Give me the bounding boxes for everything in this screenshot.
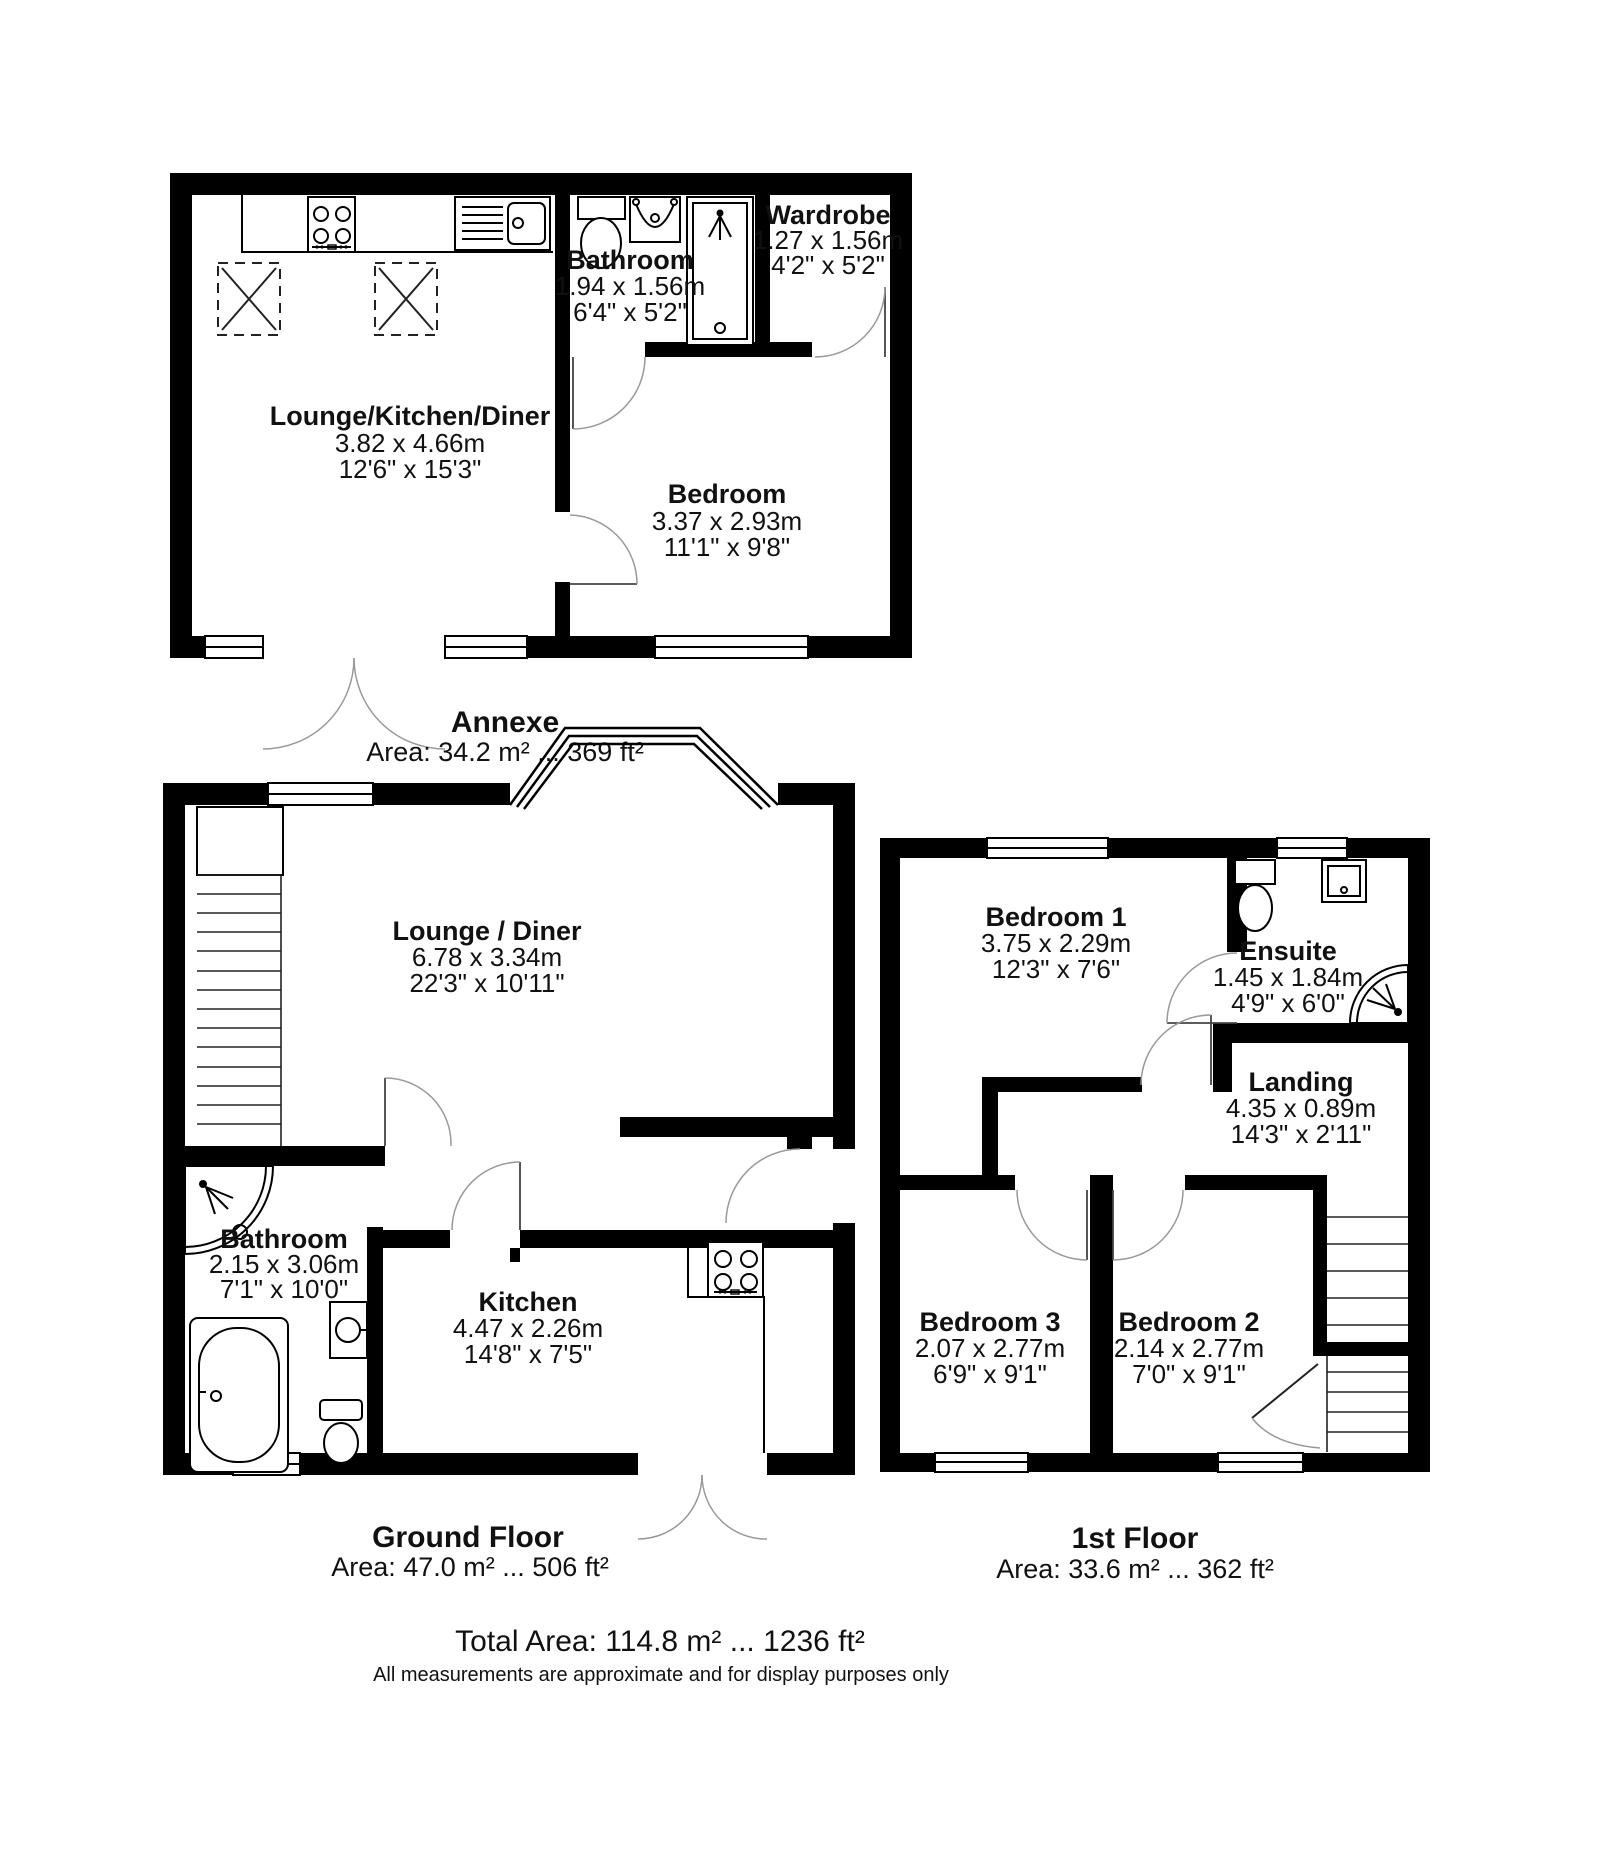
floor-area: Area: 47.0 m² ... 506 ft²: [331, 1552, 609, 1582]
first-floor-doors: [1017, 953, 1237, 1260]
room-dim-imperial: 14'3" x 2'11": [1231, 1119, 1372, 1149]
rooflight-icon: [218, 263, 280, 335]
ground-floor-plan: Lounge / Diner 6.78 x 3.34m 22'3" x 10'1…: [163, 728, 855, 1582]
hob-icon: [308, 197, 355, 252]
annexe-room-labels: Lounge/Kitchen/Diner 3.82 x 4.66m 12'6" …: [270, 200, 903, 562]
window-icon: [205, 636, 263, 658]
room-dim-imperial: 4'2" x 5'2": [771, 250, 885, 280]
bedroom3-door-icon: [1017, 1190, 1087, 1260]
window-icon: [655, 636, 808, 658]
sink-icon: [1322, 860, 1366, 902]
room-dim-imperial: 6'4" x 5'2": [573, 297, 687, 327]
rooflight-icon: [375, 263, 437, 335]
floorplan-page: Lounge/Kitchen/Diner 3.82 x 4.66m 12'6" …: [0, 0, 1600, 1874]
basin-icon: [630, 197, 680, 242]
disclaimer-text: All measurements are approximate and for…: [373, 1664, 949, 1686]
first-floor-staircase: [1252, 1217, 1408, 1452]
room-dim-imperial: 7'0" x 9'1": [1132, 1359, 1246, 1389]
window-icon: [445, 636, 527, 658]
first-floor-title: 1st Floor Area: 33.6 m² ... 362 ft²: [996, 1522, 1274, 1584]
stove-icon: [708, 1242, 763, 1297]
bedroom1-door-icon: [1141, 1015, 1211, 1085]
floor-title: Annexe: [451, 706, 559, 739]
window-icon: [1277, 838, 1347, 858]
room-name: Lounge/Kitchen/Diner: [270, 401, 551, 431]
french-doors-icon: [263, 658, 445, 749]
room-dim-imperial: 14'8" x 7'5": [464, 1339, 592, 1369]
floorplan-drawing: Lounge/Kitchen/Diner 3.82 x 4.66m 12'6" …: [0, 0, 1600, 1874]
toilet-icon: [320, 1400, 362, 1463]
front-door-icon: [726, 1149, 800, 1223]
floor-title: 1st Floor: [1072, 1522, 1199, 1555]
footer: Total Area: 114.8 m² ... 1236 ft² All me…: [373, 1625, 949, 1686]
window-icon: [1218, 1453, 1303, 1472]
room-dim-imperial: 6'9" x 9'1": [933, 1359, 1047, 1389]
staircase: [197, 807, 283, 1146]
french-doors-icon: [638, 1475, 767, 1539]
floor-area: Area: 33.6 m² ... 362 ft²: [996, 1554, 1274, 1584]
room-name: Bedroom: [668, 479, 787, 509]
floor-area: Area: 34.2 m² ... 369 ft²: [366, 737, 644, 767]
room-dim-imperial: 12'3" x 7'6": [992, 954, 1120, 984]
room-dim-imperial: 11'1" x 9'8": [664, 532, 790, 562]
total-area-text: Total Area: 114.8 m² ... 1236 ft²: [455, 1625, 865, 1658]
basin-icon: [330, 1302, 367, 1358]
bathroom-door-icon: [385, 1078, 451, 1146]
toilet-icon: [1235, 860, 1275, 931]
window-icon: [268, 783, 373, 805]
room-dim-imperial: 4'9" x 6'0": [1231, 988, 1345, 1018]
annexe-openings: [263, 342, 885, 658]
window-icon: [987, 838, 1108, 858]
bathroom-door-icon: [573, 357, 645, 429]
room-dim-imperial: 7'1" x 10'0": [220, 1274, 348, 1304]
room-dim-imperial: 12'6" x 15'3": [339, 454, 482, 484]
bedroom-door-icon: [570, 515, 637, 584]
floor-title: Ground Floor: [372, 1521, 564, 1554]
bathtub-icon: [190, 1318, 288, 1472]
ground-floor-title: Ground Floor Area: 47.0 m² ... 506 ft²: [331, 1521, 609, 1582]
kitchen-sink-icon: [455, 197, 550, 250]
ground-floor-room-labels: Lounge / Diner 6.78 x 3.34m 22'3" x 10'1…: [209, 916, 603, 1369]
window-icon: [935, 1453, 1028, 1472]
bedroom2-door-icon: [1113, 1190, 1183, 1260]
first-floor-plan: Bedroom 1 3.75 x 2.29m 12'3" x 7'6" Ensu…: [880, 838, 1430, 1584]
room-dim-imperial: 22'3" x 10'11": [409, 968, 564, 998]
kitchen-door-icon: [452, 1162, 520, 1230]
annexe-plan: Lounge/Kitchen/Diner 3.82 x 4.66m 12'6" …: [170, 173, 912, 767]
